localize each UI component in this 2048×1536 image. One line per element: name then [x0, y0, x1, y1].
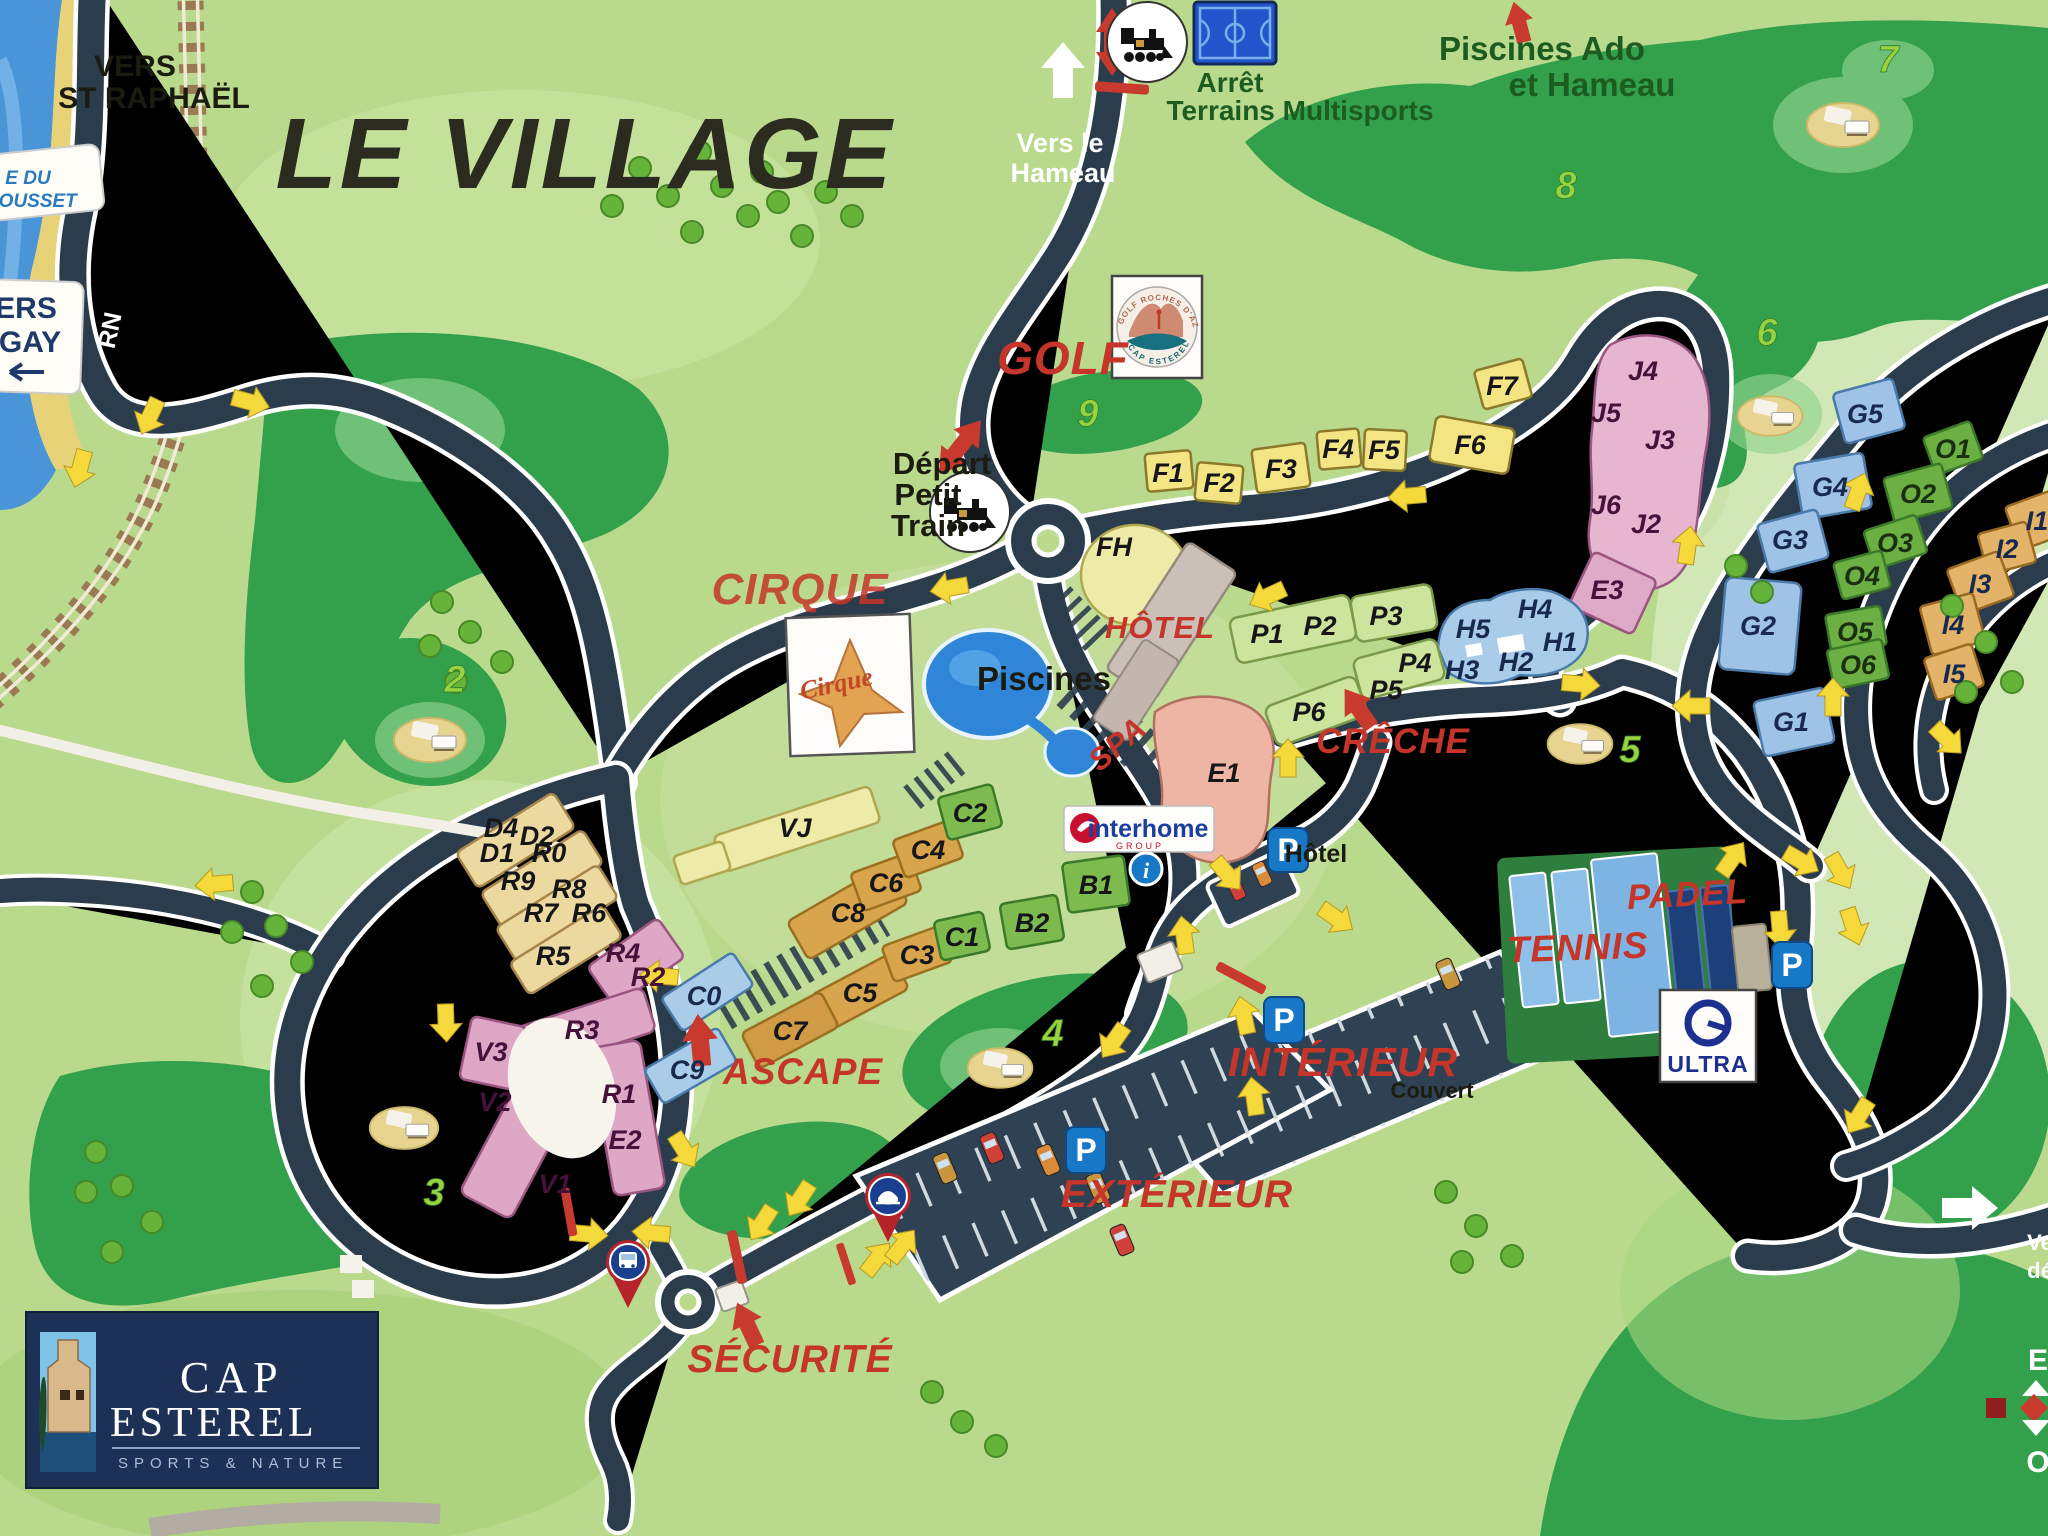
label-o5: O5 [1837, 617, 1874, 647]
map-title: LE VILLAGE [276, 98, 895, 210]
sign-agay-line1: ERS [0, 292, 57, 325]
sign-agay-line2: GAY [0, 326, 61, 359]
label-v2: V2 [478, 1087, 511, 1117]
golf-label: GOLF [997, 332, 1130, 384]
label-e2: E2 [608, 1125, 641, 1155]
cirque-logo: Cirque [786, 614, 915, 756]
roundabout-securite [658, 1272, 718, 1332]
label-c1: C1 [945, 922, 980, 952]
interhome-logo-sub: GROUP [1116, 841, 1164, 851]
label-r1: R1 [602, 1079, 637, 1109]
label-f4: F4 [1322, 434, 1354, 464]
ultra-logo-text: ULTRA [1667, 1051, 1748, 1077]
label-o4: O4 [1844, 561, 1880, 591]
depart-1: Départ [893, 446, 991, 481]
label-i2: I2 [1996, 534, 2019, 564]
label-p4: P4 [1398, 648, 1431, 678]
depart-2: Petit [894, 477, 961, 512]
label-h3: H3 [1445, 655, 1480, 685]
label-c7: C7 [773, 1016, 809, 1046]
label-c9: C9 [670, 1055, 705, 1085]
ultra-logo: ULTRA [1660, 990, 1756, 1082]
label-o3: O3 [1877, 528, 1913, 558]
label-b2: B2 [1015, 908, 1050, 938]
label-f6: F6 [1454, 430, 1486, 460]
hole-7: 7 [1877, 39, 1900, 81]
vers-hameau-1: Vers le [1016, 128, 1103, 158]
label-j5: J5 [1591, 398, 1622, 428]
label-d1: D1 [480, 838, 515, 868]
hole-8: 8 [1555, 165, 1577, 207]
interhome-logo: interhome GROUP [1064, 806, 1214, 852]
svg-text:P: P [1781, 947, 1802, 983]
p-sign-interieur: P [1264, 997, 1304, 1043]
map-image: GOLF ROCHES D'AZUR CAP ESTEREL Cirque in… [0, 0, 2048, 1536]
label-j2: J2 [1631, 509, 1661, 539]
label-c3: C3 [900, 940, 935, 970]
label-f2: F2 [1203, 468, 1235, 498]
hole-2: 2 [443, 659, 465, 701]
label-h4: H4 [1518, 594, 1553, 624]
tennis-label: TENNIS [1506, 925, 1649, 971]
depart-3: Train [891, 508, 965, 543]
label-r0: R0 [532, 838, 567, 868]
cirque-label: CIRQUE [711, 565, 889, 614]
svg-text:i: i [1143, 858, 1150, 883]
info-icon: i [1130, 853, 1162, 885]
hole-9: 9 [1077, 393, 1098, 435]
label-c5: C5 [843, 978, 878, 1008]
train-stop-top [1107, 2, 1187, 82]
vers-exit-2: dé [2027, 1258, 2048, 1283]
ascape-label: ASCAPE [722, 1051, 884, 1092]
sign-plage-line1: E DU [5, 168, 52, 189]
label-f3: F3 [1265, 454, 1297, 484]
piscines-ado-2: et Hameau [1509, 66, 1676, 103]
arret-label-1: Arrêt [1197, 67, 1264, 98]
compass-east: E [2028, 1344, 2048, 1377]
hole-6: 6 [1756, 312, 1778, 354]
label-p6: P6 [1292, 697, 1326, 727]
cap-esterel-logo: CAP ESTEREL SPORTS & NATURE [26, 1312, 378, 1488]
label-h5: H5 [1456, 614, 1491, 644]
sign-plage-line2: RROUSSET [0, 191, 78, 212]
label-g5: G5 [1847, 399, 1884, 429]
label-f5: F5 [1368, 435, 1400, 465]
interhome-logo-text: interhome [1088, 815, 1209, 843]
vers-hameau-2: Hameau [1010, 158, 1115, 188]
parking-hotel-label: Hôtel [1285, 840, 1348, 868]
label-b1: B1 [1079, 870, 1114, 900]
label-v3: V3 [474, 1037, 507, 1067]
label-fh: FH [1096, 532, 1132, 562]
label-r6: R6 [572, 898, 607, 928]
label-g4: G4 [1812, 472, 1848, 502]
label-o2: O2 [1900, 479, 1936, 509]
label-c2: C2 [953, 798, 988, 828]
p-sign-padel: P [1772, 942, 1812, 988]
securite-label: SÉCURITÉ [687, 1337, 892, 1381]
hotel-label: HÔTEL [1105, 609, 1215, 645]
label-j4: J4 [1628, 356, 1658, 386]
label-j6: J6 [1591, 490, 1622, 520]
hole-5: 5 [1619, 729, 1641, 771]
label-r5: R5 [536, 941, 571, 971]
label-h1: H1 [1543, 627, 1578, 657]
p-sign-exterieur: P [1066, 1127, 1106, 1173]
cap-logo-line2: ESTEREL [110, 1400, 318, 1446]
label-c0: C0 [687, 981, 722, 1011]
label-c8: C8 [831, 898, 866, 928]
exterieur-label: EXTÉRIEUR [1061, 1172, 1293, 1216]
vers-st-raphael-2: ST RAPHAËL [58, 82, 250, 115]
creche-label: CRÊCHE [1316, 721, 1470, 761]
piscines-label: Piscines [977, 660, 1111, 697]
label-p5: P5 [1369, 675, 1403, 705]
multisport-court-icon [1194, 2, 1276, 64]
label-i4: I4 [1942, 610, 1965, 640]
label-c4: C4 [911, 835, 946, 865]
label-r7: R7 [524, 898, 560, 928]
label-p3: P3 [1369, 601, 1402, 631]
label-o1: O1 [1935, 434, 1971, 464]
label-p2: P2 [1303, 611, 1336, 641]
hole-4: 4 [1041, 1013, 1063, 1055]
label-c6: C6 [869, 868, 904, 898]
label-r9: R9 [501, 866, 536, 896]
cap-logo-line1: CAP [180, 1353, 284, 1402]
label-i1: I1 [2026, 506, 2048, 536]
piscines-ado-1: Piscines Ado [1439, 30, 1645, 67]
roundabout-train [1008, 501, 1088, 581]
label-r2: R2 [631, 962, 666, 992]
label-f1: F1 [1152, 458, 1184, 488]
label-p1: P1 [1250, 619, 1283, 649]
cap-logo-tagline: SPORTS & NATURE [118, 1455, 348, 1472]
label-h2: H2 [1499, 647, 1534, 677]
label-g1: G1 [1773, 707, 1809, 737]
label-f7: F7 [1486, 371, 1519, 401]
vers-st-raphael-1: VERS [94, 50, 176, 83]
svg-text:P: P [1075, 1132, 1096, 1168]
arret-label-2: Terrains Multisports [1166, 95, 1433, 126]
label-vj: VJ [778, 813, 812, 843]
label-i3: I3 [1969, 569, 1992, 599]
label-j3: J3 [1645, 425, 1675, 455]
label-r3: R3 [565, 1015, 600, 1045]
svg-text:P: P [1273, 1002, 1294, 1038]
label-o6: O6 [1840, 650, 1877, 680]
padel-label: PADEL [1626, 872, 1749, 917]
compass-west: O [2026, 1446, 2048, 1479]
label-g3: G3 [1772, 525, 1808, 555]
vers-exit-1: Ve [2027, 1230, 2048, 1255]
label-e1: E1 [1207, 758, 1240, 788]
label-i5: I5 [1943, 659, 1967, 689]
resort-map: GOLF ROCHES D'AZUR CAP ESTEREL Cirque in… [0, 0, 2048, 1536]
label-e3: E3 [1590, 575, 1623, 605]
couvert-label: Couvert [1390, 1078, 1474, 1103]
label-v1: V1 [538, 1169, 571, 1199]
label-g2: G2 [1740, 611, 1776, 641]
hole-3: 3 [423, 1172, 444, 1214]
